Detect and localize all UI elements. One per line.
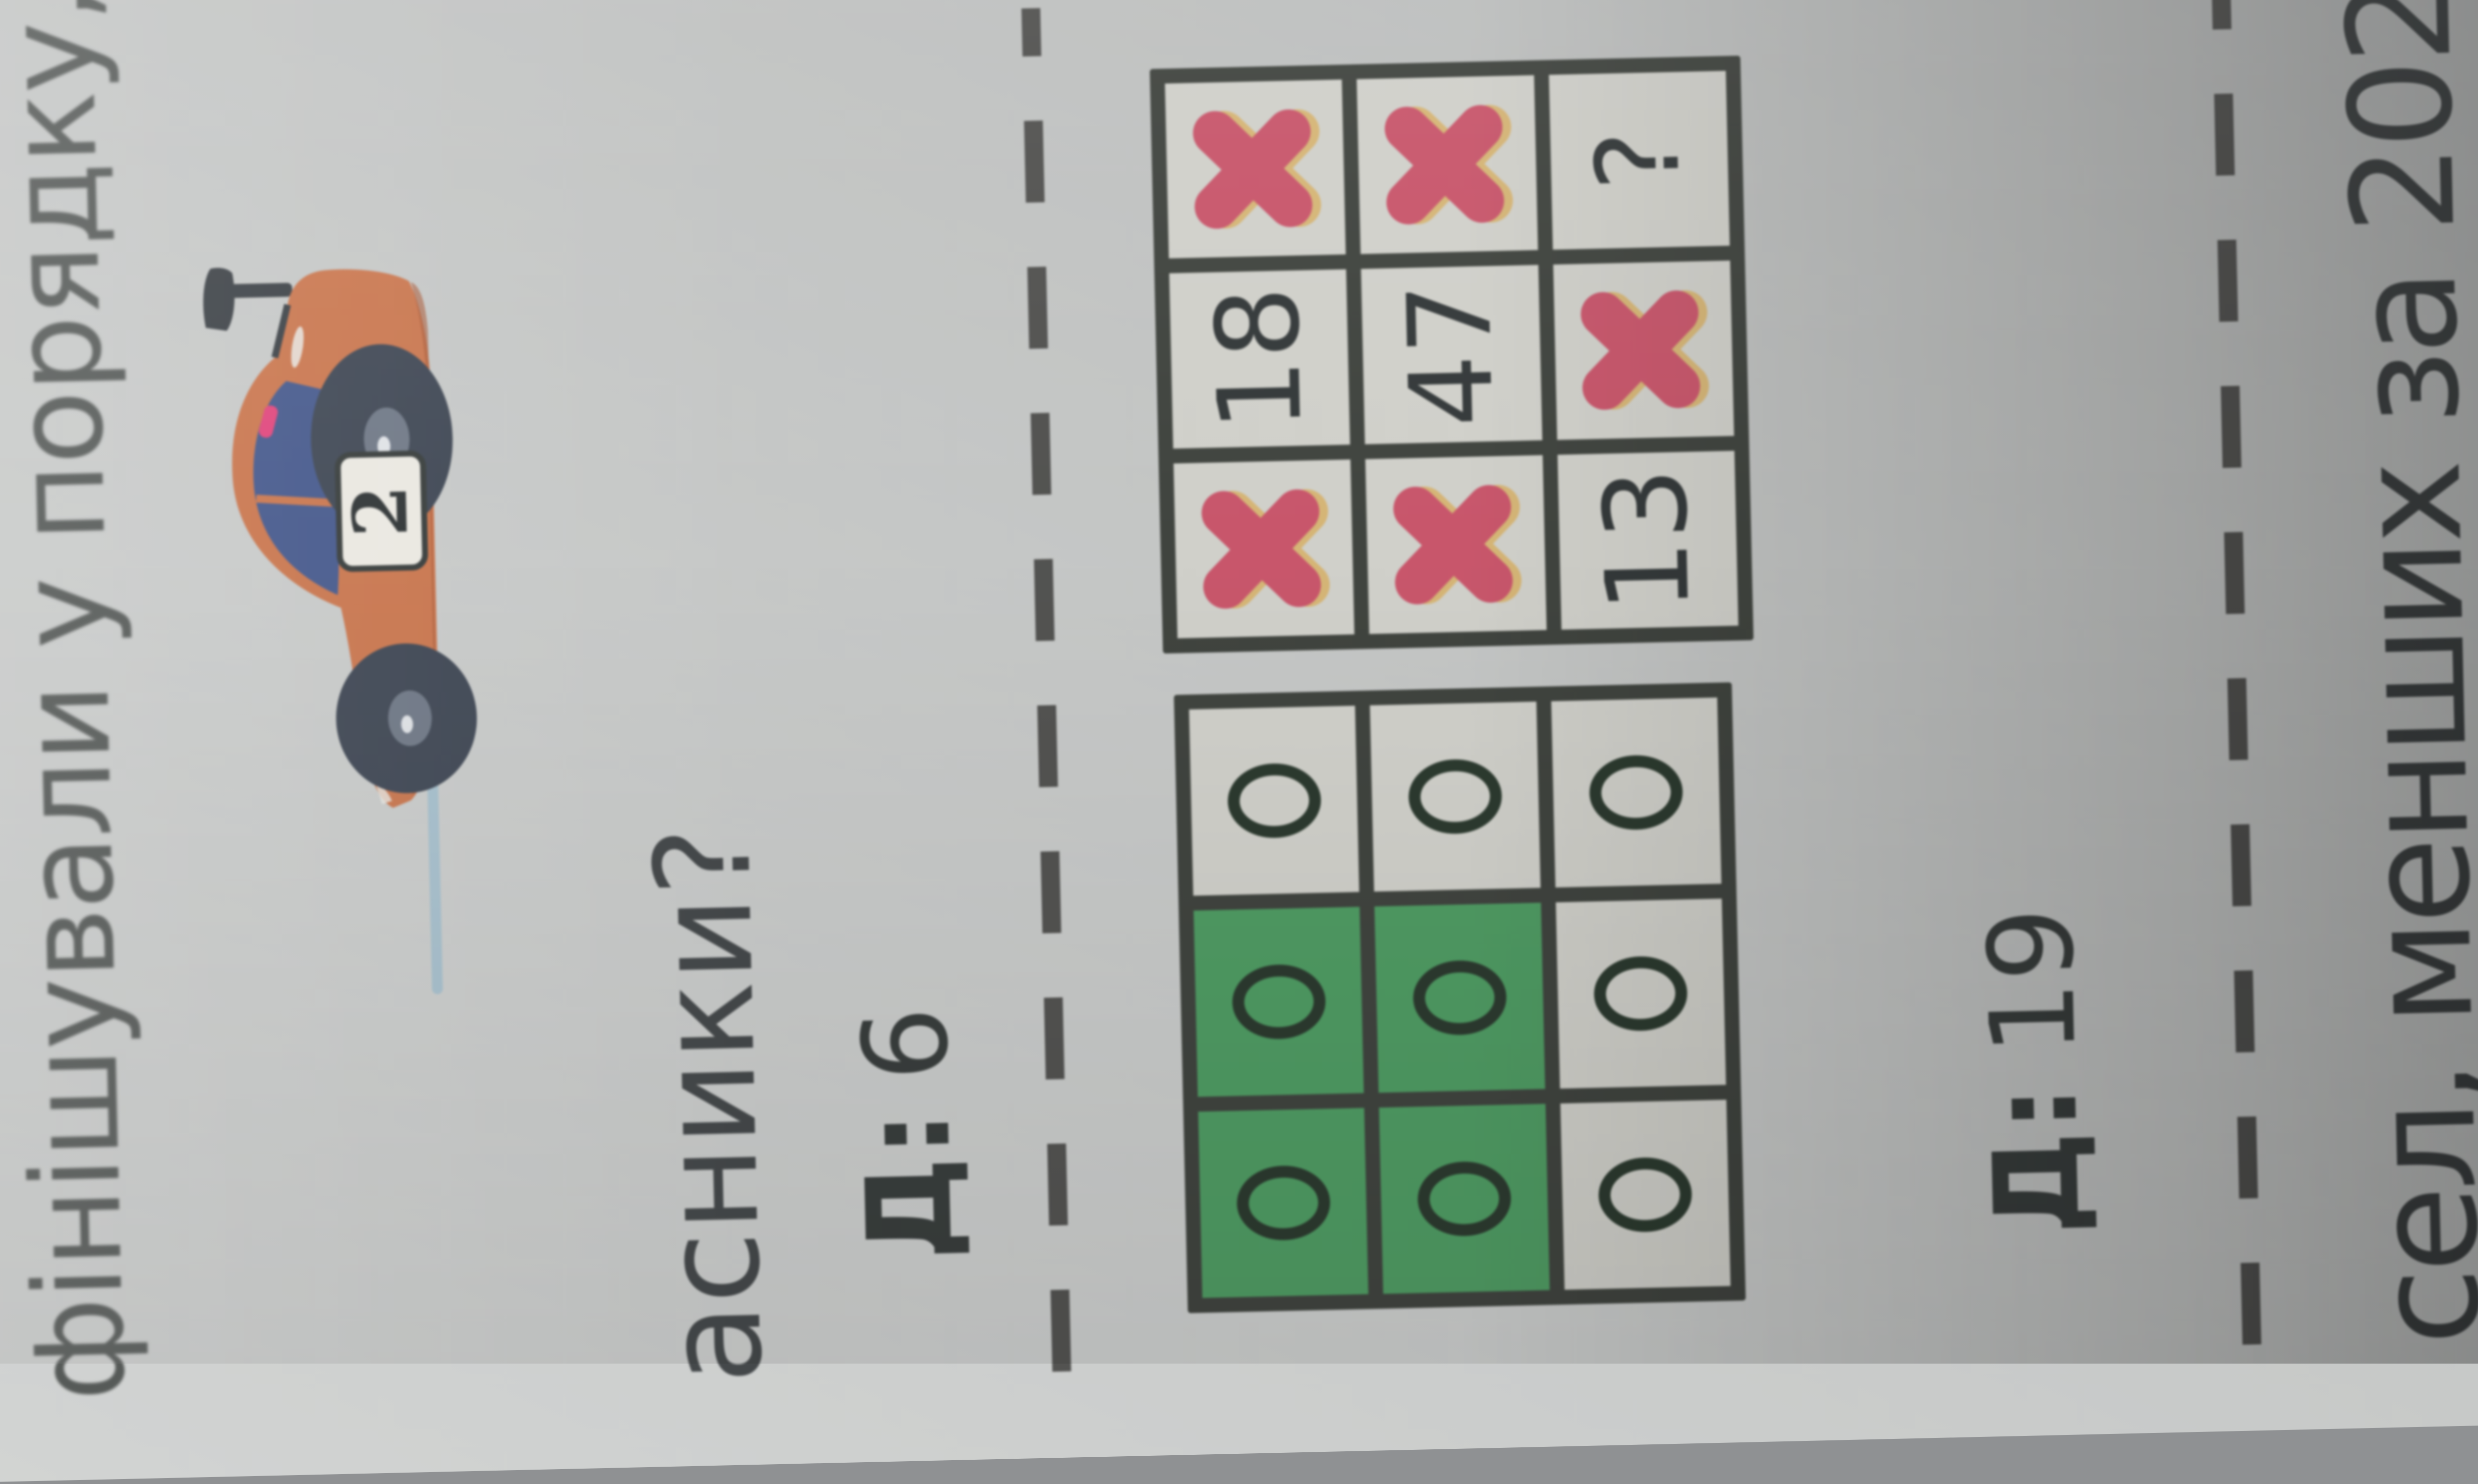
car-number: 2 <box>336 485 424 538</box>
zero-cell <box>1556 899 1726 1089</box>
x-marks-grid: 184713? <box>1150 55 1753 654</box>
dashed-separator-1 <box>1021 8 1071 1372</box>
zero-mark <box>1417 1160 1512 1237</box>
x-mark-cell <box>1174 459 1354 638</box>
zero-cell <box>1370 702 1540 892</box>
zero-cell <box>1551 698 1722 888</box>
number-cell: ? <box>1549 71 1730 250</box>
answer-label-2: Д:19 <box>1973 906 2097 1236</box>
x-mark-cell <box>1553 261 1734 440</box>
zero-cell <box>1189 706 1359 896</box>
spoiler-strut <box>227 283 292 298</box>
race-car-illustration: 2 <box>198 250 504 821</box>
zero-mark <box>1408 758 1503 835</box>
dashed-separator-2 <box>2211 0 2261 1345</box>
zero-mark <box>1227 763 1321 839</box>
race-car: 2 <box>202 262 479 812</box>
x-mark-icon <box>1380 469 1532 620</box>
answer-2-prefix: Д: <box>1968 1084 2106 1237</box>
zero-cell <box>1198 1108 1369 1298</box>
question-text-fragment: асники? <box>637 825 781 1386</box>
zero-mark <box>1589 754 1684 831</box>
x-mark-cell <box>1365 455 1546 634</box>
x-mark-icon <box>1188 474 1340 624</box>
exercise-text-fragment-bottom: сел, менших за 2021, <box>2326 0 2478 1347</box>
zero-mark <box>1236 1164 1331 1241</box>
x-mark-icon <box>1371 90 1523 240</box>
answer-2-value: 19 <box>1964 906 2102 1057</box>
x-mark-cell <box>1357 75 1538 254</box>
book-page: фінішували у порядку, <box>0 0 2478 1484</box>
answer-1-value: 6 <box>838 1005 975 1083</box>
number-cell: 18 <box>1169 270 1350 448</box>
x-mark-icon <box>1568 275 1720 426</box>
zero-mark <box>1412 959 1507 1036</box>
zero-mark <box>1232 964 1326 1041</box>
x-mark-cell <box>1165 80 1346 259</box>
answer-label-1: Д:6 <box>847 1006 970 1263</box>
zero-mark <box>1598 1156 1692 1233</box>
answer-1-prefix: Д: <box>840 1109 979 1263</box>
number-cell: 47 <box>1361 265 1542 444</box>
x-mark-icon <box>1180 94 1332 244</box>
page-content: фінішували у порядку, <box>0 0 2478 1395</box>
zero-mark <box>1593 955 1688 1032</box>
exercise-text-fragment-top: фінішували у порядку, <box>0 0 142 1403</box>
grid-number: 47 <box>1393 281 1511 429</box>
grid-number: ? <box>1581 129 1697 192</box>
zeros-grid <box>1174 682 1746 1313</box>
car-spoiler <box>202 268 235 331</box>
zero-cell <box>1379 1104 1550 1294</box>
car-number-plate: 2 <box>336 453 425 569</box>
grid-number: 13 <box>1589 466 1707 614</box>
zero-cell <box>1375 903 1545 1093</box>
photo-of-textbook-page: { "exercise_top": { "text_fragment": "фі… <box>0 0 2478 1364</box>
zero-cell <box>1560 1099 1731 1290</box>
grid-number: 18 <box>1201 285 1319 433</box>
zero-cell <box>1193 907 1364 1097</box>
number-cell: 13 <box>1557 450 1738 629</box>
